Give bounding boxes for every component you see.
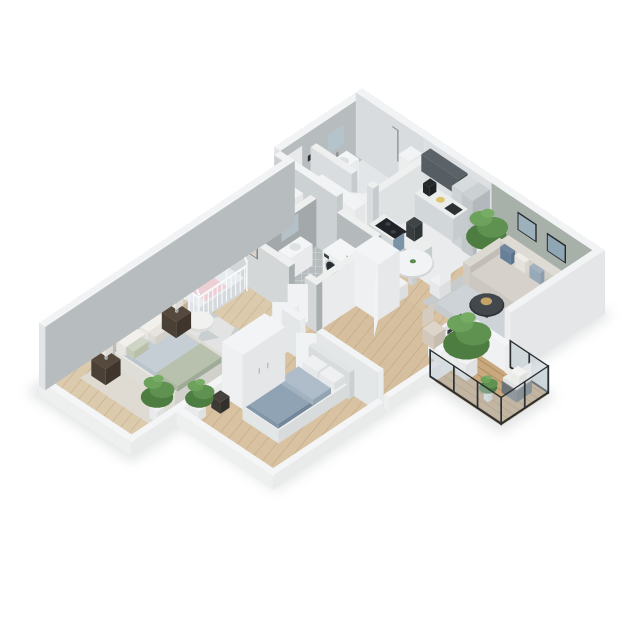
floorplan-render (0, 0, 640, 640)
crib-slat (231, 276, 232, 298)
wardrobe-handle (259, 368, 260, 374)
crib-slat (235, 273, 236, 295)
coffee-table-tray (481, 298, 492, 306)
balcony-railing-front-post (500, 396, 502, 426)
floorplan-canvas (0, 0, 640, 640)
crib-garland-light (197, 292, 200, 295)
bath2-basin (290, 243, 301, 251)
balcony-railing-front-post (547, 365, 549, 395)
table-vase (410, 259, 416, 263)
living-plant-foliage-4 (481, 209, 494, 218)
crib-post (246, 260, 248, 291)
crib-slat (240, 270, 241, 292)
balcony-railing-top-post (510, 339, 512, 369)
master-plant-foliage-4 (153, 375, 164, 382)
crib-slat (208, 292, 209, 314)
cooktop-burner (391, 230, 396, 234)
crib-slat (221, 283, 222, 305)
bedroom2-headboard-side-a (350, 370, 355, 400)
balcony-plant-large-foliage-4 (460, 312, 476, 322)
balcony-railing-front-post (453, 365, 455, 394)
wall-nursery-top-b-side-a (316, 281, 322, 332)
shower-pole (397, 130, 398, 162)
balcony-plant-small-foliage-4 (486, 375, 492, 379)
crib-slat (226, 280, 227, 302)
wall-lower-wing-left-side-b (39, 323, 45, 391)
crib-slat (244, 267, 245, 289)
balcony-railing-front-post (477, 380, 479, 409)
crib-slat (212, 289, 213, 311)
balcony-railing-front-post (429, 349, 431, 379)
balcony-railing-front-post (524, 380, 526, 409)
cooktop-burner (386, 222, 391, 226)
wardrobe-handle (267, 362, 268, 368)
bedroom2-plant-foliage-4 (196, 379, 205, 385)
crib-slat (217, 286, 218, 308)
